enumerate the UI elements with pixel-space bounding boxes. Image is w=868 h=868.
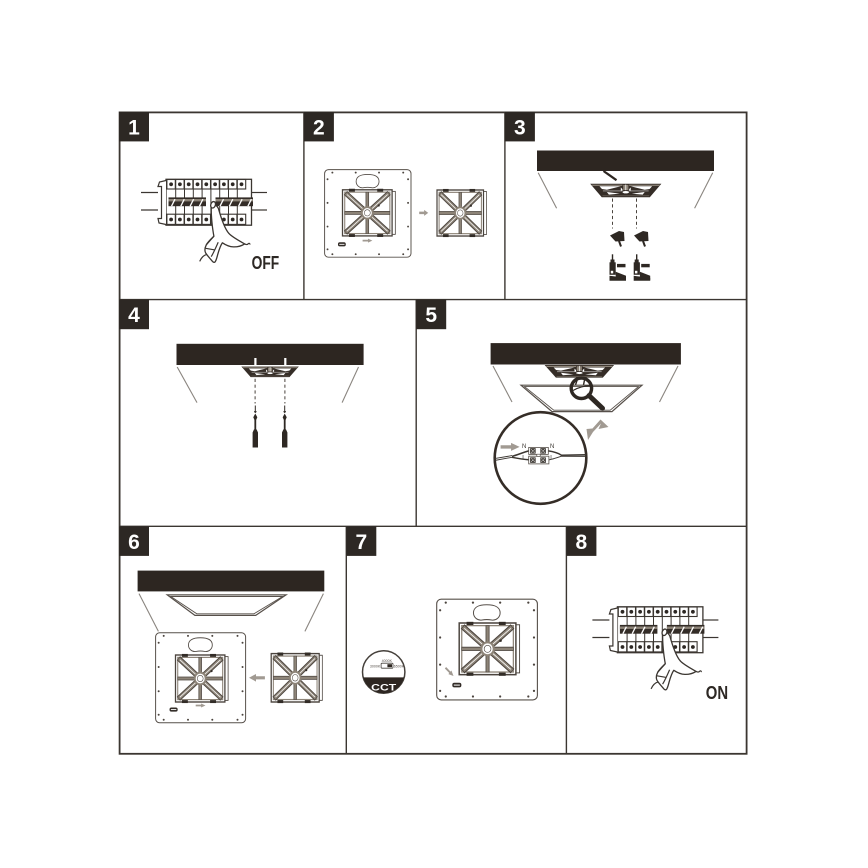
- svg-text:3000K: 3000K: [370, 664, 381, 668]
- svg-text:N: N: [522, 444, 526, 450]
- svg-text:N: N: [550, 444, 554, 450]
- svg-text:6: 6: [128, 531, 140, 554]
- svg-text:CCT: CCT: [371, 683, 396, 694]
- svg-text:4000K: 4000K: [382, 659, 393, 663]
- svg-text:OFF: OFF: [252, 252, 280, 273]
- svg-text:ON: ON: [706, 682, 728, 703]
- svg-text:2: 2: [313, 116, 325, 139]
- svg-text:1: 1: [128, 116, 140, 139]
- svg-text:7: 7: [355, 531, 367, 554]
- svg-text:6500K: 6500K: [394, 664, 405, 668]
- svg-text:4: 4: [128, 304, 140, 327]
- svg-text:5: 5: [425, 304, 437, 327]
- svg-text:3: 3: [514, 116, 526, 139]
- svg-text:8: 8: [576, 531, 588, 554]
